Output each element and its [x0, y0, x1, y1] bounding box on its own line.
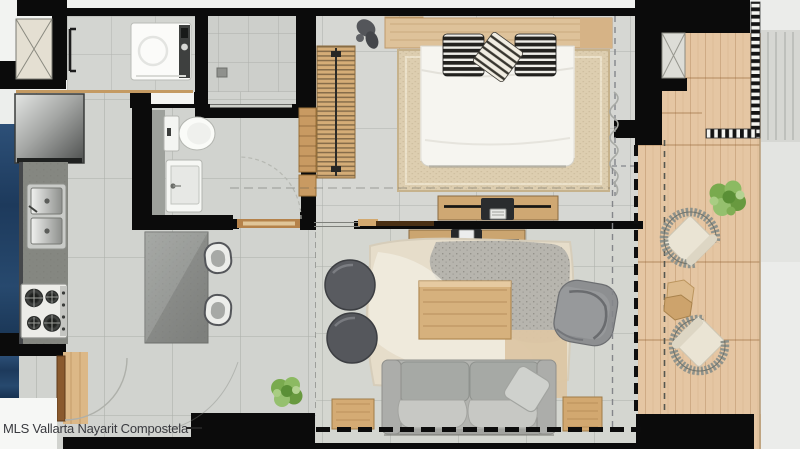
- svg-text:MLS Vallarta Nayarit Compostel: MLS Vallarta Nayarit Compostela: [3, 421, 189, 436]
